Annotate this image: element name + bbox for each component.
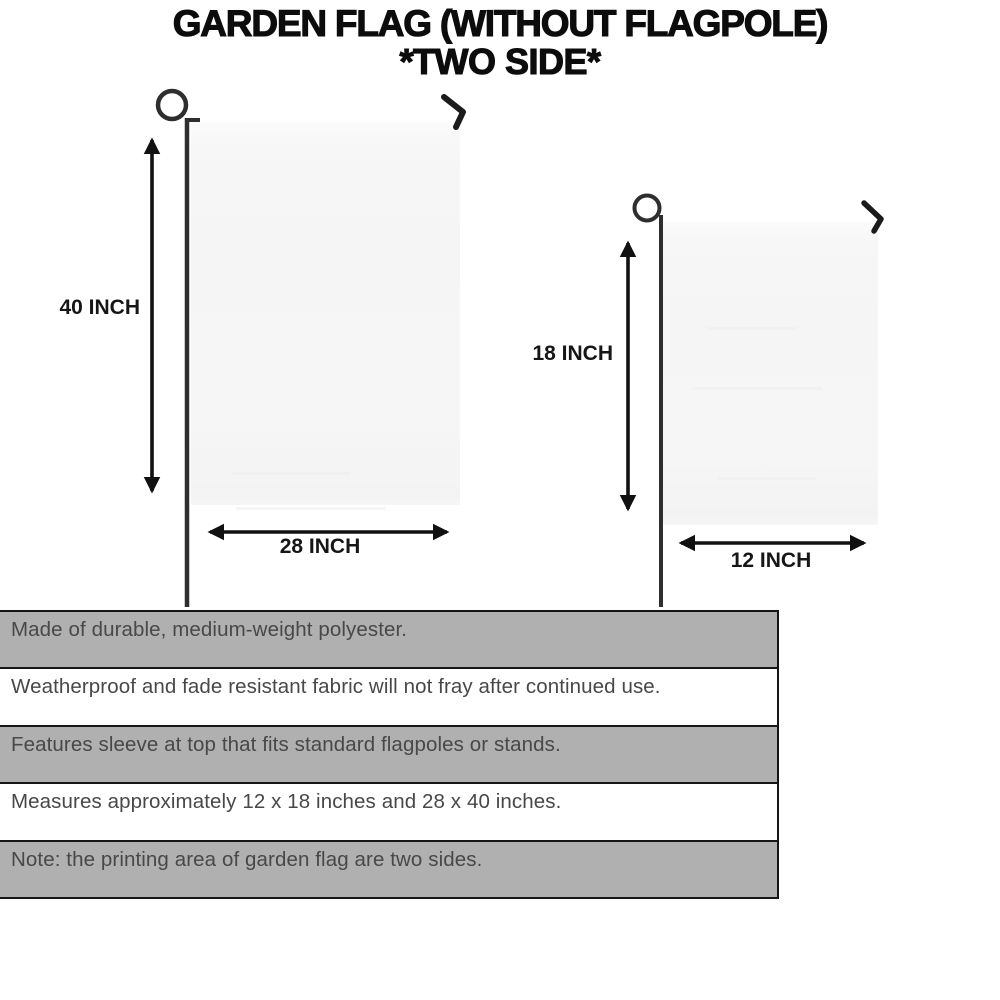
height-label-large: 40 INCH bbox=[30, 296, 140, 320]
page-subtitle: *TWO SIDE* bbox=[0, 44, 1000, 80]
width-label-large: 28 INCH bbox=[245, 535, 395, 559]
width-label-small: 12 INCH bbox=[696, 549, 846, 573]
fabric-crease bbox=[231, 472, 351, 475]
page-title: GARDEN FLAG (WITHOUT FLAGPOLE) bbox=[0, 5, 1000, 44]
feature-row: Measures approximately 12 x 18 inches an… bbox=[0, 782, 777, 839]
pole-loop-icon-small bbox=[635, 196, 660, 221]
fabric-crease bbox=[707, 327, 797, 330]
flag-panel-large bbox=[191, 122, 460, 505]
feature-row: Note: the printing area of garden flag a… bbox=[0, 840, 777, 897]
feature-row: Weatherproof and fade resistant fabric w… bbox=[0, 667, 777, 724]
fabric-crease bbox=[236, 507, 386, 510]
height-label-small: 18 INCH bbox=[503, 342, 613, 366]
features-table: Made of durable, medium-weight polyester… bbox=[0, 610, 779, 899]
feature-row: Made of durable, medium-weight polyester… bbox=[0, 612, 777, 667]
fabric-crease bbox=[717, 477, 817, 480]
feature-row: Features sleeve at top that fits standar… bbox=[0, 725, 777, 782]
fabric-crease bbox=[692, 387, 822, 390]
product-infographic: GARDEN FLAG (WITHOUT FLAGPOLE) *TWO SIDE… bbox=[0, 0, 1000, 1000]
flag-panel-small bbox=[662, 222, 878, 525]
pole-loop-icon-large bbox=[158, 91, 186, 119]
title-block: GARDEN FLAG (WITHOUT FLAGPOLE) *TWO SIDE… bbox=[0, 5, 1000, 80]
